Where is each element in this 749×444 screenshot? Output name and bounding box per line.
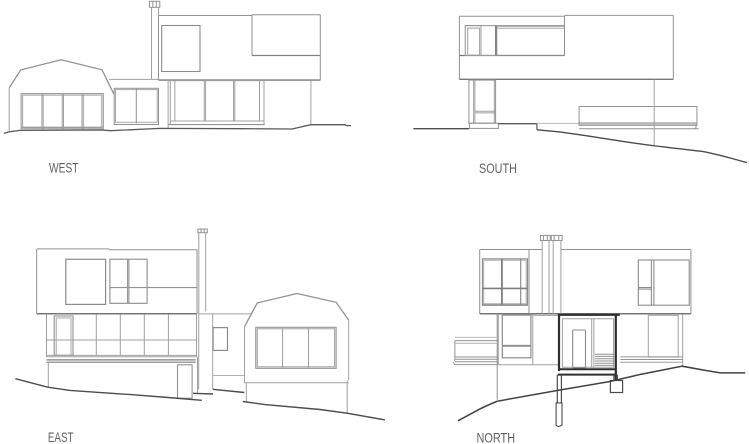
svg-text:NORTH: NORTH: [477, 431, 516, 444]
svg-text:WEST: WEST: [49, 160, 79, 175]
svg-text:SOUTH: SOUTH: [479, 161, 517, 176]
svg-text:EAST: EAST: [48, 430, 74, 444]
